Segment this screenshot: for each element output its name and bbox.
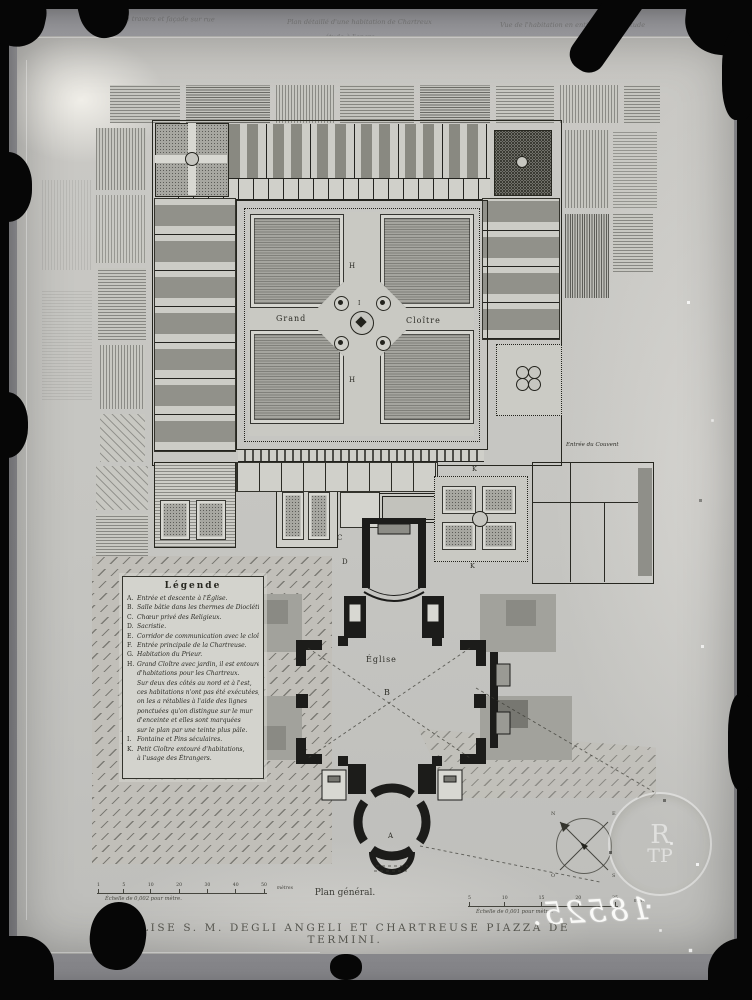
frame-edge-right — [737, 0, 752, 1000]
legend-text: Salle bâtie dans les thermes de Diocléti… — [137, 603, 259, 612]
legend-text: on les a rétablies à l'aide des lignes — [137, 697, 259, 706]
legend-key: C. — [127, 613, 137, 622]
legend-item: à l'usage des Étrangers. — [127, 754, 259, 763]
scale-tick: 5 — [468, 897, 471, 906]
legend-item: C. Chœur privé des Religieux. — [127, 613, 259, 622]
legend-item: K. Petit Cloître entouré d'habitations, — [127, 745, 259, 754]
legend-key: B. — [127, 603, 137, 612]
legend-text: Grand Cloître avec jardin, il est entour… — [137, 660, 259, 669]
label-d: D — [342, 558, 348, 566]
label-cloitre: Cloître — [406, 316, 441, 325]
glass-plate-photograph: Coupe en travers et façade sur rue Plan … — [0, 0, 752, 1000]
label-c: C — [337, 534, 342, 542]
legend-item: A. Entrée et descente à l'Église. — [127, 594, 259, 603]
legend-item: H. Grand Cloître avec jardin, il est ent… — [127, 660, 259, 669]
legend-item: G. Habitation du Prieur. — [127, 650, 259, 659]
scale-ticks: 151020304050 — [97, 884, 267, 894]
legend-key — [127, 707, 137, 716]
legend-title: Légende — [127, 581, 259, 591]
legend-item: D. Sacristie. — [127, 622, 259, 631]
compass-letter-n: N — [551, 811, 555, 817]
photographic-plate: Légende A. Entrée et descente à l'Église… — [17, 36, 734, 954]
legend-item: sur le plan par une teinte plus pâle. — [127, 726, 259, 735]
legend-text: à l'usage des Étrangers. — [137, 754, 259, 763]
scale-tick: 1 — [97, 884, 100, 893]
compass-letter-o: O — [551, 873, 555, 879]
legend-text: Entrée et descente à l'Église. — [137, 594, 259, 603]
legend-text: Chœur privé des Religieux. — [137, 613, 259, 622]
legend-item: B. Salle bâtie dans les thermes de Diocl… — [127, 603, 259, 612]
legend-list: A. Entrée et descente à l'Église. B. Sal… — [127, 594, 259, 763]
legend-item: I. Fontaine et Pins séculaires. — [127, 735, 259, 744]
compass-circle — [556, 818, 612, 874]
frame-blob — [722, 30, 752, 120]
legend-key: K. — [127, 745, 137, 754]
legend-key: E. — [127, 632, 137, 641]
legend-key: F. — [127, 641, 137, 650]
label-eglise: Église — [366, 655, 397, 664]
legend-item: F. Entrée principale de la Chartreuse. — [127, 641, 259, 650]
frame-blob — [728, 694, 752, 790]
top-annotation-center: Plan détaillé d'une habitation de Chartr… — [287, 18, 432, 26]
legend-item: d'habitations pour les Chartreux. — [127, 669, 259, 678]
legend-key: A. — [127, 594, 137, 603]
legend-item: d'enceinte et elles sont marquées — [127, 716, 259, 725]
scale-caption: Échelle de 0,002 pour mètre. — [105, 896, 267, 902]
legend-key — [127, 726, 137, 735]
plan-general-caption: Plan général. — [300, 888, 390, 898]
stamp-monogram-bottom: TP — [647, 847, 672, 865]
legend-text: Petit Cloître entouré d'habitations, — [137, 745, 259, 754]
legend-item: on les a rétablies à l'aide des lignes — [127, 697, 259, 706]
label-h-bottom: H — [349, 376, 355, 384]
frame-edge-left — [0, 0, 9, 1000]
legend-text: Corridor de communication avec le cloîtr… — [137, 632, 259, 641]
engraved-plan: Légende A. Entrée et descente à l'Église… — [17, 36, 734, 954]
stamp-monogram-top: R — [650, 823, 670, 847]
legend-text: d'enceinte et elles sont marquées — [137, 716, 259, 725]
legend-key: H. — [127, 660, 137, 669]
compass-letter-s: S — [612, 873, 615, 879]
legend-item: Sur deux des côtés au nord et à l'est, — [127, 679, 259, 688]
inventory-number-handwritten: 18525. — [519, 890, 661, 933]
legend-key: I. — [127, 735, 137, 744]
scale-tick: 40 — [233, 884, 239, 893]
legend-text: d'habitations pour les Chartreux. — [137, 669, 259, 678]
legend-text: Sur deux des côtés au nord et à l'est, — [137, 679, 259, 688]
legend-key: G. — [127, 650, 137, 659]
label-entree-couvent: Entrée du Couvent — [566, 442, 619, 448]
scale-tick: 50 — [261, 884, 267, 893]
label-a: A — [388, 832, 393, 840]
label-k-top: K — [472, 465, 477, 473]
scale-tick: 5 — [122, 884, 125, 893]
legend-text: Sacristie. — [137, 622, 259, 631]
legend-text: ponctuées qu'on distingue sur le mur — [137, 707, 259, 716]
legend-text: sur le plan par une teinte plus pâle. — [137, 726, 259, 735]
legend-key — [127, 716, 137, 725]
scale-tick: 10 — [148, 884, 154, 893]
legend-text: Habitation du Prieur. — [137, 650, 259, 659]
legend-key — [127, 669, 137, 678]
legend-key: D. — [127, 622, 137, 631]
scale-bar-left: 151020304050 mètres Échelle de 0,002 pou… — [97, 884, 267, 902]
label-i-fountain: I — [358, 300, 360, 307]
legend-key — [127, 679, 137, 688]
frame-blob — [330, 954, 362, 980]
legend-text: ces habitations n'ont pas été exécutées, — [137, 688, 259, 697]
label-h-top: H — [349, 262, 355, 270]
frame-edge-bottom — [0, 980, 752, 1000]
scale-tick: 30 — [204, 884, 210, 893]
corner-shadow — [0, 936, 54, 1000]
legend-item: E. Corridor de communication avec le clo… — [127, 632, 259, 641]
legend-key — [127, 697, 137, 706]
legend-item: ces habitations n'ont pas été exécutées, — [127, 688, 259, 697]
legend-item: ponctuées qu'on distingue sur le mur — [127, 707, 259, 716]
embossed-stamp: R TP — [608, 792, 712, 896]
label-grand: Grand — [276, 314, 306, 323]
legend-text: Entrée principale de la Chartreuse. — [137, 641, 259, 650]
legend-text: Fontaine et Pins séculaires. — [137, 735, 259, 744]
label-b: B — [384, 688, 390, 697]
label-k-bottom: K — [470, 562, 475, 570]
plate-rim-highlight — [40, 952, 320, 953]
scale-unit: mètres — [277, 886, 293, 891]
legend-box: Légende A. Entrée et descente à l'Église… — [122, 576, 264, 779]
legend-key — [127, 754, 137, 763]
scale-tick: 10 — [502, 897, 508, 906]
legend-key — [127, 688, 137, 697]
scale-tick: 20 — [176, 884, 182, 893]
